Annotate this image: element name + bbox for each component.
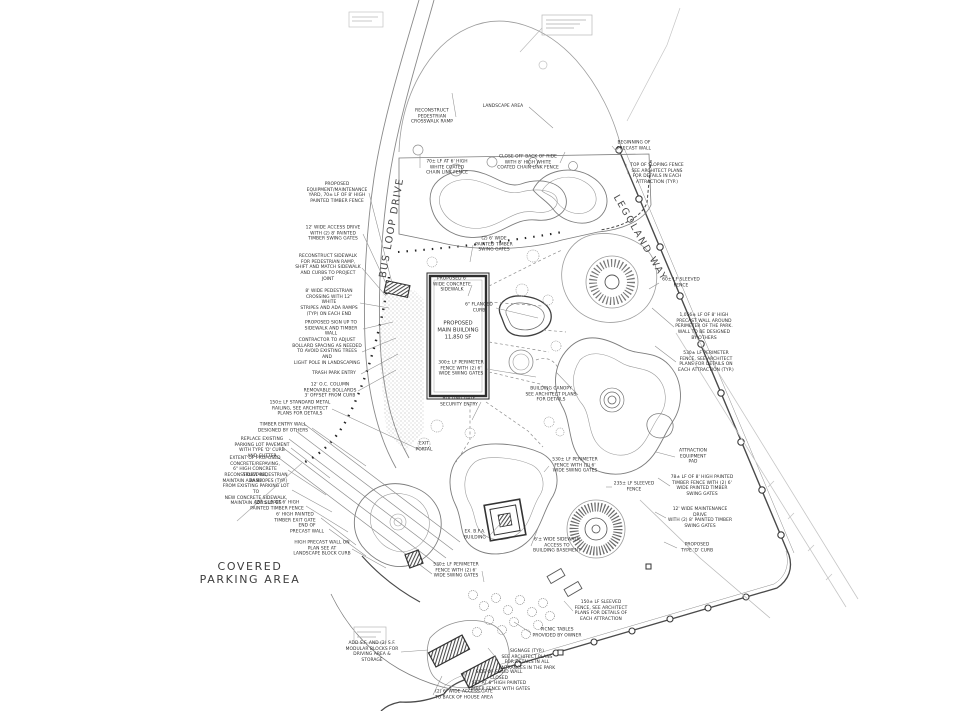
callout-label: 12' WIDE MAINTENANCE DRIVE WITH (2) 8' P… <box>666 507 734 530</box>
area-label-covered-parking: COVERED PARKING AREA <box>200 560 301 586</box>
callout-label: 6' HIGH PAINTED TIMBER EXIT GATE <box>269 512 321 523</box>
main-building-label: PROPOSED MAIN BUILDING 11,850 SF <box>437 320 478 341</box>
callout-label: ADD S.F. AND (2) S.F. MODULAR BLOCKS FOR… <box>343 641 401 664</box>
callout-label: 300± LF PERIMETER FENCE WITH (2) 6' WIDE… <box>435 361 487 378</box>
callout-label: SIGNAGE (TYP.) SEE ARCHITECT PLANS FOR D… <box>498 649 556 672</box>
callout-label: TOP OF SLOPING FENCE SEE ARCHITECT PLANS… <box>628 163 686 186</box>
site-plan: PROPOSED EQUIPMENT/MAINTENANCE YARD, 70±… <box>0 0 980 711</box>
callout-label: 8' WIDE PEDESTRIAN CROSSING WITH 12" WHI… <box>298 289 360 317</box>
callout-label: CLOSE OFF BACK OF RIDE WITH 8' HIGH WHIT… <box>496 155 560 172</box>
stipple-landscape-strip <box>379 290 424 452</box>
callout-label: 78± LF OF 8' HIGH PAINTED TIMBER FENCE W… <box>670 475 734 498</box>
callout-label: HIGH PRECAST WALL ON PLAN SEE AT LANDSCA… <box>292 541 352 558</box>
callout-label: PROPOSED TYPE 'D' CURB <box>677 542 717 553</box>
callout-label: 70± LF AT 6' HIGH WHITE COATED CHAIN LIN… <box>420 160 474 177</box>
callout-label: (2) 6' WIDE ACCESS GATE TO BACK OF HOUSE… <box>433 689 495 700</box>
callout-label: PROPOSED EQUIPMENT/MAINTENANCE YARD, 70±… <box>305 182 369 205</box>
callout-label: CONTRACTOR TO ADJUST BOLLARD SPACING AS … <box>292 338 362 366</box>
callout-label: 6'± WIDE SIDEWALK ACCESS TO BUILDING BAS… <box>531 538 583 555</box>
callout-label: 530± LF PERIMETER FENCE WITH (2) 6' WIDE… <box>430 563 482 580</box>
picnic-tables <box>547 569 582 597</box>
callout-label: 6" FLANGED CURB <box>462 302 496 313</box>
callout-label: PROPOSED 6' WIDE CONCRETE SIDEWALK <box>432 277 472 294</box>
callout-label: EX. B.F.A. BUILDING <box>460 529 490 540</box>
callout-label: PICNIC TABLES PROVIDED BY OWNER <box>531 627 583 638</box>
callout-label: EXIT PORTAL <box>412 441 436 452</box>
central-pond <box>499 296 551 374</box>
callout-label: ROLLING GATE SECURITY ENTRY <box>437 396 481 407</box>
callout-label: BEGINNING OF PRECAST WALL <box>612 140 656 151</box>
north-boundary <box>399 8 680 152</box>
left-attraction <box>354 484 441 568</box>
callout-label: ATTRACTION EQUIPMENT PAD <box>675 449 711 466</box>
callout-label: 1,056± LF OF 8' HIGH PRECAST WALL AROUND… <box>674 313 734 341</box>
callout-label: TIMBER ENTRY WALL DESIGNED BY OTHERS <box>254 422 312 433</box>
callout-label: 150± LF OF 6' HIGH PAINTED TIMBER FENCE <box>248 500 306 511</box>
callout-label: PROPOSED SIGN UP TO SIDEWALK AND TIMBER … <box>299 321 363 338</box>
callout-label: RECONSTRUCT SIDEWALK FOR PEDESTRIAN RAMP… <box>294 254 362 282</box>
callout-label: 12' WIDE ACCESS DRIVE WITH (2) 8' PAINTE… <box>303 226 363 243</box>
callout-label: 530± LF PERIMETER FENCE WITH (2) 6' WIDE… <box>549 458 601 475</box>
callout-label: TRASH PARK ENTRY <box>307 371 361 377</box>
callout-label: 12' O.C. COLUMN REMOVABLE BOLLARDS 3' OF… <box>302 383 358 400</box>
reference-box-top-right <box>520 15 592 52</box>
safari-attraction <box>556 338 681 474</box>
callout-label: BUILDING CANOPY SEE ARCHITECT PLANS FOR … <box>524 387 578 404</box>
callout-label: (2) 6' WIDE PAINTED TIMBER SWING GATES <box>473 237 515 254</box>
callout-label: 150± LF STANDARD METAL RAILING, SEE ARCH… <box>268 401 332 418</box>
callout-label: 150± LF SLEEVED FENCE, SEE ARCHITECT PLA… <box>573 600 629 623</box>
callout-label: 530± LF PERIMETER FENCE, SEE ARCHITECT P… <box>676 351 736 374</box>
callout-label: 235± LF SLEEVED FENCE <box>612 481 656 492</box>
callout-label: LANDSCAPE AREA <box>477 104 529 110</box>
callout-label: RECONSTRUCT PEDESTRIAN CROSSWALK RAMP <box>408 109 456 126</box>
callout-label: END OF PRECAST WALL <box>285 523 329 534</box>
reference-box-top-left <box>349 12 383 27</box>
